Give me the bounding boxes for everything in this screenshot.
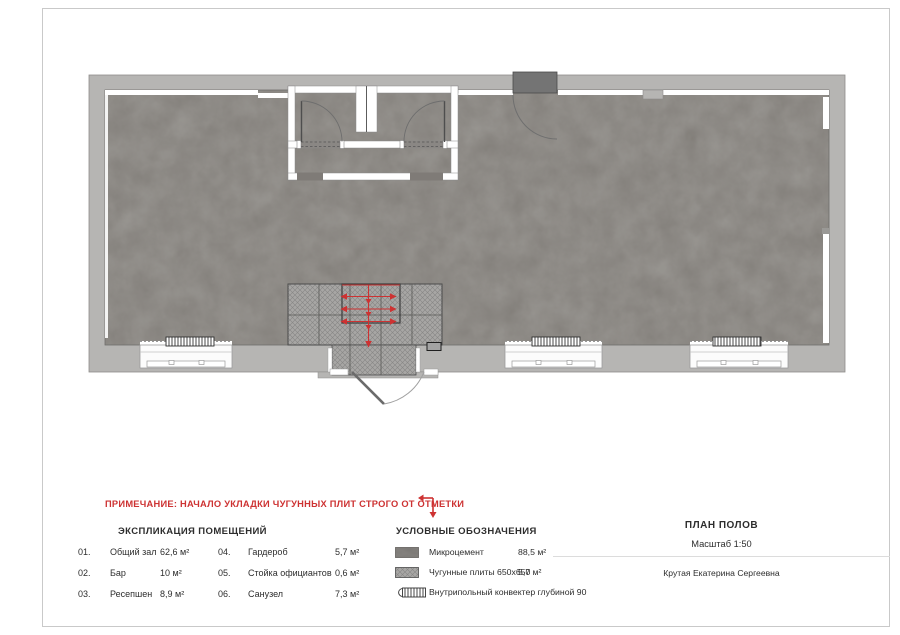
room-area: 0,6 м² — [335, 568, 359, 578]
explication-row: 01. Общий зал 62,6 м² — [78, 547, 189, 568]
title-block: ПЛАН ПОЛОВ Масштаб 1:50 Крутая Екатерина… — [553, 520, 890, 578]
wall-pilaster — [643, 90, 663, 99]
drawing-author: Крутая Екатерина Сергеевна — [553, 568, 890, 578]
room-number: 06. — [218, 589, 248, 599]
room-area: 5,7 м² — [335, 547, 359, 557]
room-number: 01. — [78, 547, 110, 557]
explication-rows-left: 01. Общий зал 62,6 м² 02. Бар 10 м² 03. … — [78, 547, 189, 610]
room-number: 02. — [78, 568, 110, 578]
room-name: Ресепшен — [110, 589, 160, 599]
room-name: Санузел — [248, 589, 335, 599]
floor-convector-swatch — [395, 587, 429, 598]
explication-row: 05. Стойка официантов 0,6 м² — [218, 568, 359, 589]
window-middle — [505, 345, 602, 368]
explication-row: 04. Гардероб 5,7 м² — [218, 547, 359, 568]
room-area: 8,9 м² — [160, 589, 189, 599]
legend-label: Чугунные плиты 650х650 — [429, 567, 518, 577]
legend-area: 5,7 м² — [518, 567, 546, 577]
drawing-title: ПЛАН ПОЛОВ — [553, 520, 890, 531]
legend-label: Внутрипольный конвектер глубиной 90 — [429, 587, 518, 597]
microcement-swatch — [395, 547, 429, 558]
room-number: 04. — [218, 547, 248, 557]
explication-title: ЭКСПЛИКАЦИЯ ПОМЕЩЕНИЙ — [118, 526, 267, 537]
legend-title: УСЛОВНЫЕ ОБОЗНАЧЕНИЯ — [396, 526, 537, 537]
legend: Микроцемент 88,5 м² Чугунные плиты 650х6… — [395, 542, 546, 602]
explication-row: 06. Санузел 7,3 м² — [218, 589, 359, 610]
legend-area: 88,5 м² — [518, 547, 546, 557]
drawing-sheet: ПРИМЕЧАНИЕ: НАЧАЛО УКЛАДКИ ЧУГУННЫХ ПЛИТ… — [0, 0, 900, 635]
legend-item: Чугунные плиты 650х650 5,7 м² — [395, 562, 546, 582]
explication-row: 03. Ресепшен 8,9 м² — [78, 589, 189, 610]
main-floor-microcement — [105, 90, 829, 345]
room-number: 05. — [218, 568, 248, 578]
room-area: 10 м² — [160, 568, 189, 578]
room-name: Стойка официантов — [248, 568, 335, 578]
room-name: Гардероб — [248, 547, 335, 557]
window-left — [140, 345, 232, 368]
explication-row: 02. Бар 10 м² — [78, 568, 189, 589]
title-block-divider — [553, 556, 890, 557]
room-name: Бар — [110, 568, 160, 578]
drawing-scale: Масштаб 1:50 — [553, 539, 890, 549]
legend-item: Внутрипольный конвектер глубиной 90 — [395, 582, 546, 602]
note-arrow-icon — [417, 493, 439, 519]
legend-label: Микроцемент — [429, 547, 518, 557]
room-number: 03. — [78, 589, 110, 599]
cast-iron-tiles-swatch — [395, 567, 429, 578]
explication-rows-right: 04. Гардероб 5,7 м² 05. Стойка официанто… — [218, 547, 359, 610]
room-area: 7,3 м² — [335, 589, 359, 599]
room-area: 62,6 м² — [160, 547, 189, 557]
note-text: ПРИМЕЧАНИЕ: НАЧАЛО УКЛАДКИ ЧУГУННЫХ ПЛИТ… — [105, 499, 464, 509]
room-name: Общий зал — [110, 547, 160, 557]
window-right — [690, 345, 788, 368]
legend-item: Микроцемент 88,5 м² — [395, 542, 546, 562]
